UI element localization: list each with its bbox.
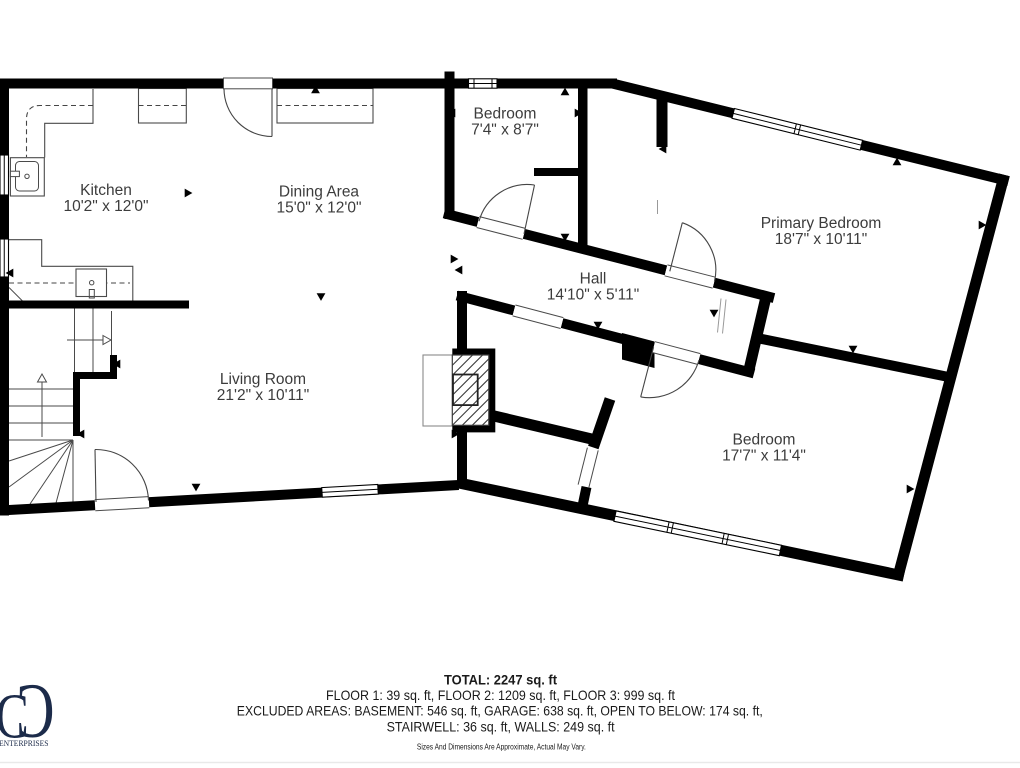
svg-text:TOTAL: 2247 sq. ft: TOTAL: 2247 sq. ft (444, 672, 557, 688)
svg-text:Sizes And Dimensions Are Appro: Sizes And Dimensions Are Approximate, Ac… (417, 743, 586, 752)
svg-text:Bedroom: Bedroom (733, 432, 796, 449)
svg-text:Bedroom: Bedroom (474, 106, 537, 123)
svg-text:Kitchen: Kitchen (80, 182, 132, 199)
svg-text:Hall: Hall (580, 271, 607, 288)
svg-text:21'2" x 10'11": 21'2" x 10'11" (217, 387, 309, 404)
svg-text:Living Room: Living Room (220, 371, 306, 388)
svg-text:15'0" x 12'0": 15'0" x 12'0" (276, 200, 361, 217)
svg-text:FLOOR 1: 39 sq. ft, FLOOR 2: 1: FLOOR 1: 39 sq. ft, FLOOR 2: 1209 sq. ft… (326, 687, 675, 703)
svg-text:Primary Bedroom: Primary Bedroom (761, 215, 882, 232)
svg-text:Dining Area: Dining Area (279, 184, 360, 201)
svg-text:10'2" x 12'0": 10'2" x 12'0" (63, 198, 148, 215)
svg-text:18'7" x 10'11": 18'7" x 10'11" (775, 231, 867, 248)
svg-text:17'7" x 11'4": 17'7" x 11'4" (722, 448, 806, 465)
svg-text:STAIRWELL: 36 sq. ft, WALLS: 2: STAIRWELL: 36 sq. ft, WALLS: 249 sq. ft (387, 718, 615, 734)
svg-text:EXCLUDED AREAS: BASEMENT: 546: EXCLUDED AREAS: BASEMENT: 546 sq. ft, GA… (237, 703, 763, 719)
svg-text:14'10" x 5'11": 14'10" x 5'11" (547, 287, 639, 304)
svg-text:7'4" x 8'7": 7'4" x 8'7" (471, 122, 539, 139)
svg-text:ENTERPRISES: ENTERPRISES (0, 739, 49, 748)
